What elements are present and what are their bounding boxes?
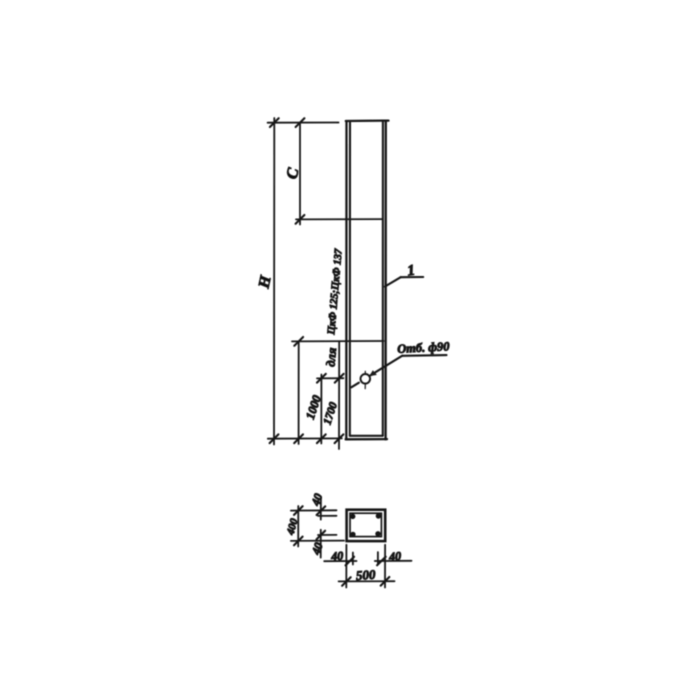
svg-text:1700: 1700 <box>322 401 341 427</box>
svg-text:1: 1 <box>406 263 416 280</box>
svg-text:40: 40 <box>308 492 325 509</box>
svg-text:500: 500 <box>355 567 376 583</box>
svg-text:ЦкФ 125;ЦкФ 137: ЦкФ 125;ЦкФ 137 <box>326 248 345 336</box>
svg-text:Отб. ф90: Отб. ф90 <box>397 339 450 356</box>
svg-text:40: 40 <box>388 549 402 564</box>
svg-text:40: 40 <box>308 541 325 558</box>
svg-text:40: 40 <box>330 549 344 564</box>
svg-text:для: для <box>324 346 340 367</box>
svg-text:H: H <box>255 273 275 290</box>
